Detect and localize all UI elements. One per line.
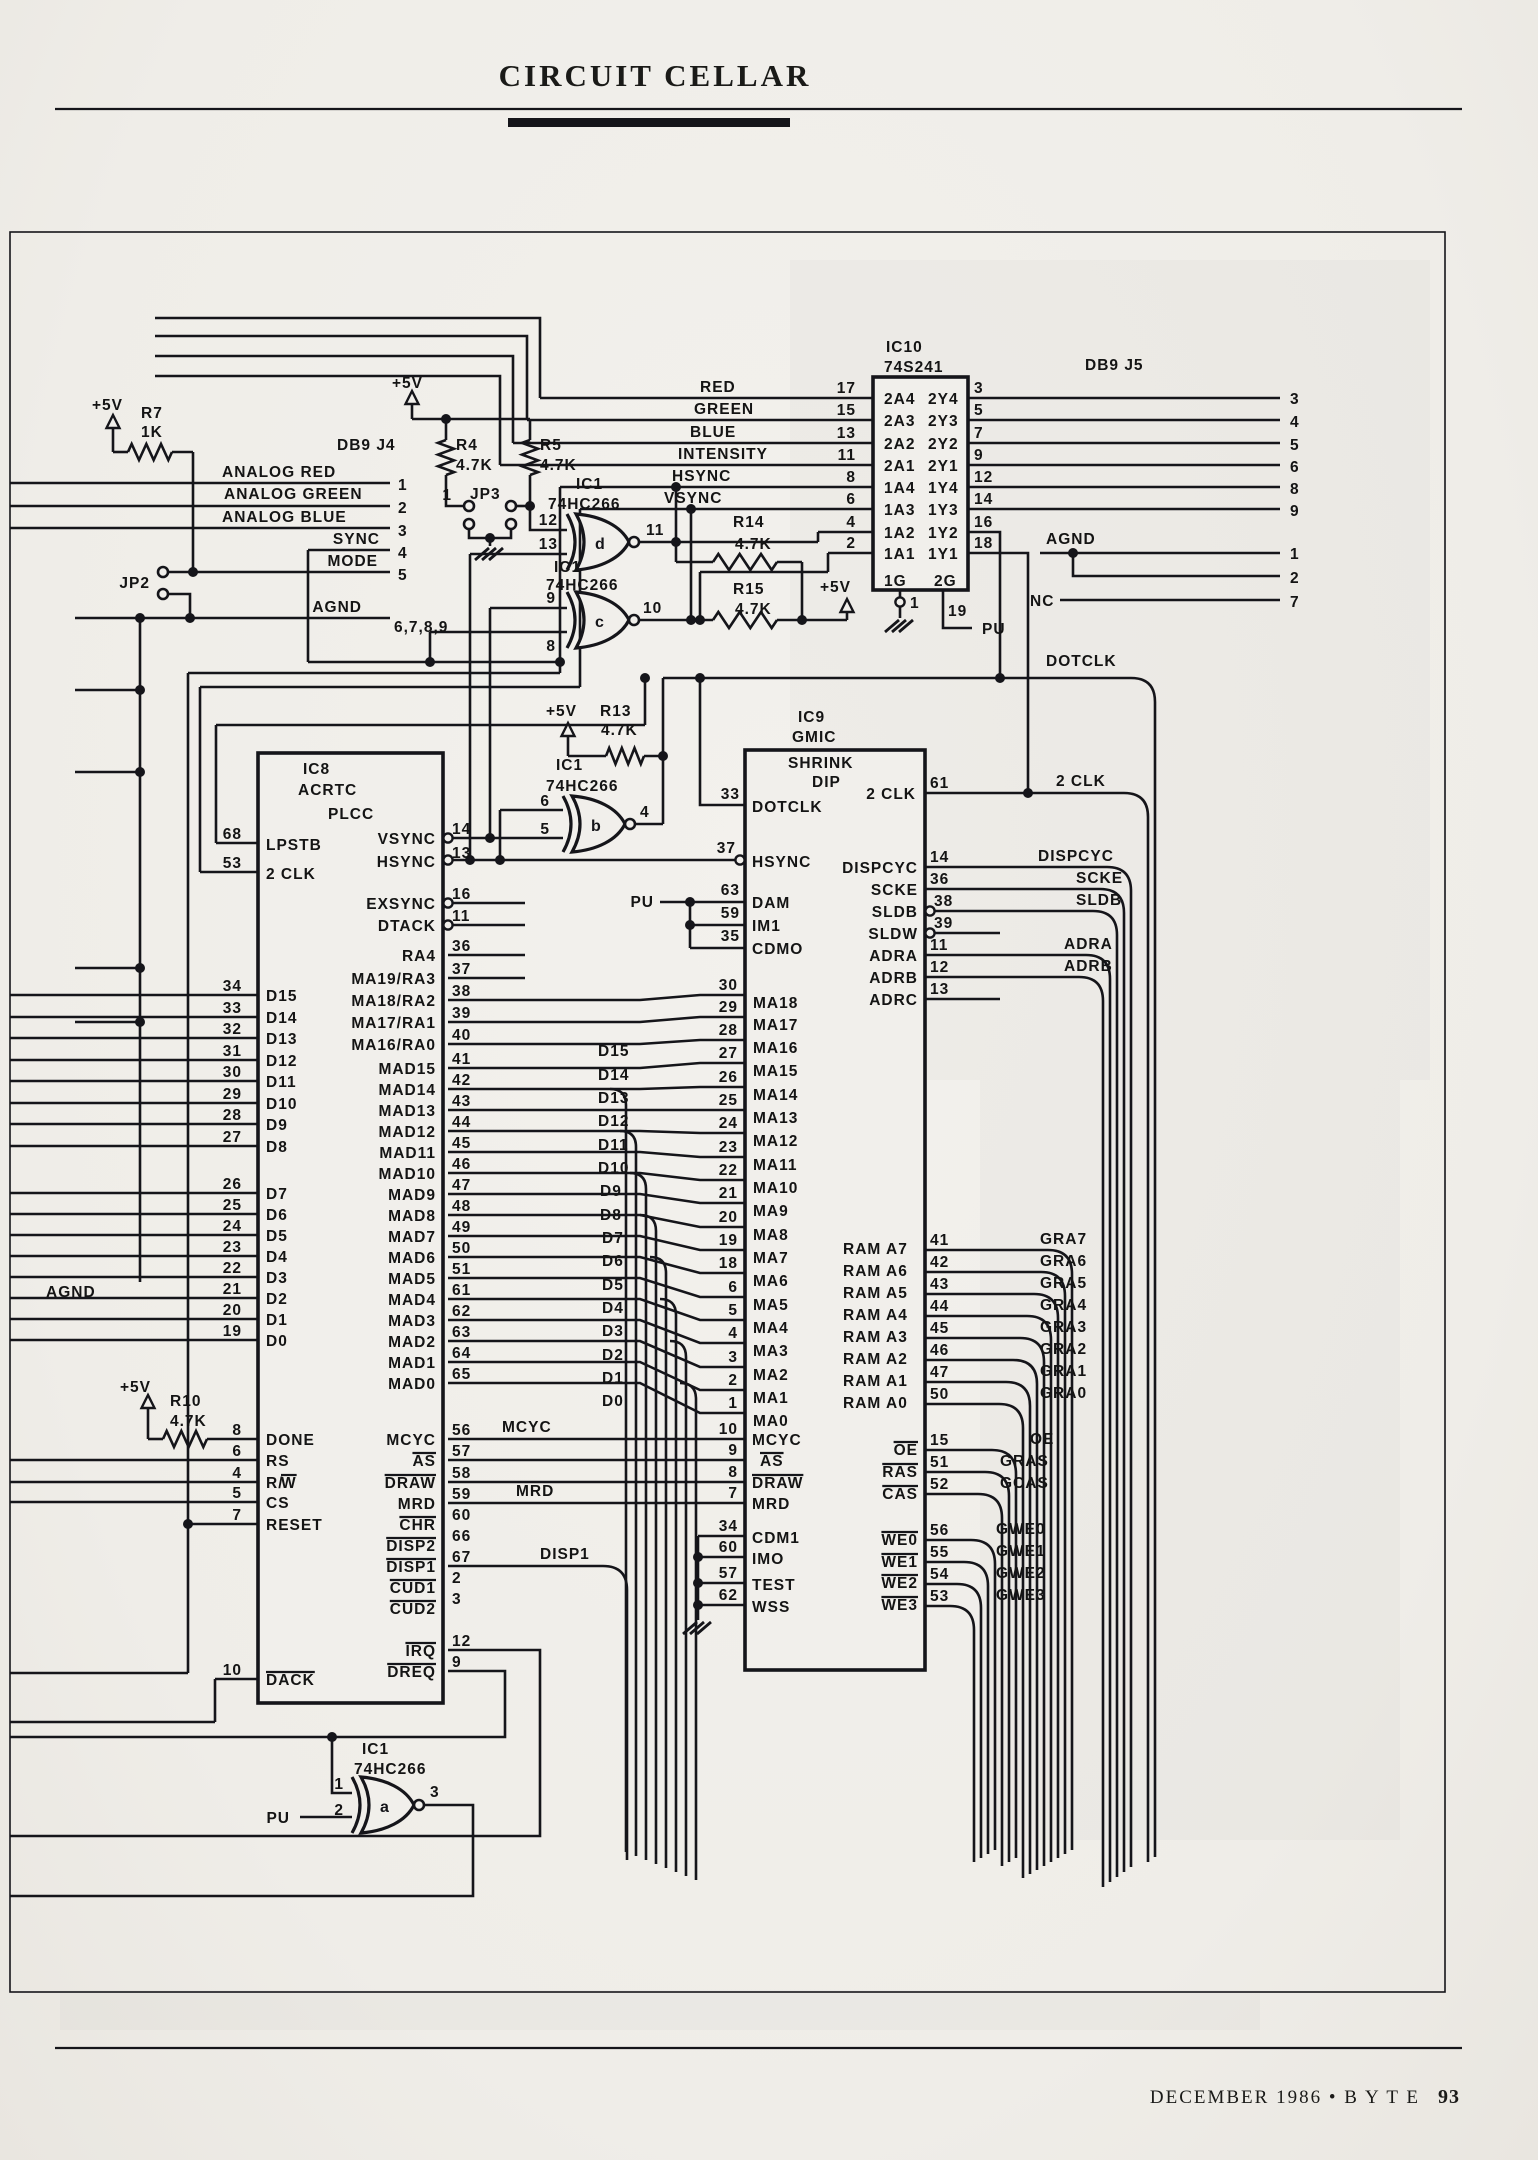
schematic-label: CHR [399,1517,436,1534]
schematic-label: 46 [452,1156,471,1173]
schematic-label: D11 [598,1137,629,1154]
wire [448,1131,745,1133]
schematic-label: 18 [974,535,993,552]
schematic-label: VSYNC [664,490,722,507]
schematic-label: DRAW [752,1475,803,1492]
junction-dot [525,501,535,511]
xnor-gate-letter: a [380,1799,389,1816]
schematic-label: 8 [546,638,556,655]
schematic-label: 74HC266 [354,1761,427,1778]
schematic-label: 18 [719,1255,738,1272]
schematic-label: WE3 [881,1597,918,1614]
junction-dot [693,1600,703,1610]
schematic-label: MA16/RA0 [351,1037,436,1054]
schematic-label: MA15 [753,1063,798,1080]
schematic-label: MA11 [753,1157,798,1174]
schematic-label: MA19/RA3 [351,971,436,988]
schematic-label: RAM A0 [843,1395,908,1412]
schematic-label: AS [412,1453,436,1470]
schematic-label: RAM A2 [843,1351,908,1368]
schematic-label: 34 [719,1518,738,1535]
junction-dot [686,615,696,625]
schematic-label: 59 [452,1486,471,1503]
schematic-label: 22 [223,1260,242,1277]
schematic-label: 11 [838,447,856,464]
schematic-label: 1 [1290,546,1300,563]
junction-dot [640,673,650,683]
schematic-label: 6 [1290,459,1300,476]
wire [448,1194,745,1203]
schematic-label: JP2 [119,575,150,592]
schematic-label: 24 [719,1115,738,1132]
wire [448,995,745,1000]
schematic-label: ADRB [1064,958,1113,975]
schematic-label: 13 [539,536,558,553]
schematic-label: 7 [728,1485,738,1502]
schematic-label: D2 [602,1347,624,1364]
jumper-pad [506,519,516,529]
schematic-label: IC10 [886,339,923,356]
schematic-label: MAD0 [388,1376,436,1393]
junction-dot [185,613,195,623]
schematic-label: CUD2 [390,1601,436,1618]
xnor-gate-bubble [629,615,639,625]
schematic-label: D10 [266,1096,297,1113]
schematic-label: GRA6 [1040,1253,1087,1270]
schematic-label: 2 CLK [866,786,916,803]
schematic-label: D1 [266,1312,288,1329]
schematic-label: 27 [223,1129,242,1146]
schematic-label: 1Y3 [928,502,959,519]
schematic-label: 37 [452,961,471,978]
schematic-label: +5V [546,703,577,720]
schematic-label: 45 [452,1135,471,1152]
schematic-label: D9 [266,1117,288,1134]
schematic-label: RAM A7 [843,1241,908,1258]
schematic-label: D4 [266,1249,288,1266]
schematic-label: 37 [717,840,736,857]
schematic-label: 3 [452,1591,462,1608]
schematic-label: R5 [540,437,562,454]
resistor [606,748,644,764]
schematic-label: 1 [910,595,920,612]
schematic-label: BLUE [690,424,736,441]
schematic-label: MA18/RA2 [351,993,436,1010]
schematic-label: 4 [640,804,650,821]
schematic-label: SYNC [333,531,380,548]
schematic-label: DB9 J4 [337,437,396,454]
schematic-label: GREEN [694,401,754,418]
schematic-label: 61 [930,775,949,792]
junction-dot [485,833,495,843]
junction-dot [135,963,145,973]
schematic-label: 38 [452,983,471,1000]
schematic-label: 67 [452,1549,471,1566]
schematic-label: 55 [930,1544,949,1561]
schematic-label: 3 [1290,391,1300,408]
schematic-label: MRD [398,1496,436,1513]
schematic-label: D3 [602,1323,624,1340]
schematic-label: 9 [546,590,556,607]
title-bar [508,118,790,127]
schematic-label: MAD15 [378,1061,436,1078]
schematic-label: 65 [452,1366,471,1383]
resistor [128,444,172,460]
schematic-label: 20 [719,1209,738,1226]
schematic-label: MAD1 [388,1355,436,1372]
schematic-label: D0 [266,1333,288,1350]
schematic-label: D8 [266,1139,288,1156]
junction-dot [135,1017,145,1027]
wire [448,1383,745,1413]
schematic-label: NC [1030,593,1054,610]
schematic-label: PU [266,1810,290,1827]
schematic-label: 1 [398,477,408,494]
junction-dot [327,1732,337,1742]
schematic-label: MAD7 [388,1229,436,1246]
schematic-label: 1 [442,487,452,504]
schematic-label: 1A1 [884,546,915,563]
schematic-label: 2A2 [884,436,915,453]
schematic-label: 74HC266 [546,577,619,594]
schematic-label: MA3 [753,1343,789,1360]
resistor [438,440,454,475]
schematic-label: 2 [846,535,856,552]
schematic-label: AGND [1046,531,1096,548]
schematic-label: 3 [728,1349,738,1366]
magazine-page: CIRCUIT CELLAR dcbaIC1074S2412A42Y42A32Y… [0,0,1538,2160]
schematic-label: 50 [452,1240,471,1257]
schematic-label: ADRA [1064,936,1113,953]
schematic-label: DIP [812,774,841,791]
schematic-label: 36 [930,871,949,888]
schematic-label: MA17 [753,1017,798,1034]
junction-dot [685,897,695,907]
schematic-label: D7 [266,1186,288,1203]
schematic-label: 2A1 [884,458,915,475]
schematic-label: 5 [232,1485,242,1502]
wire-curve [925,1606,974,1862]
schematic-label: 58 [452,1465,471,1482]
schematic-label: EXSYNC [366,896,436,913]
junction-dot [425,657,435,667]
schematic-label: 6 [232,1443,242,1460]
wire-curve [448,1566,627,1860]
xnor-gate-input-arc [352,1777,360,1833]
schematic-label: MAD3 [388,1313,436,1330]
schematic-label: IRQ [405,1643,436,1660]
schematic-label: 7 [1290,594,1300,611]
schematic-label: MODE [328,553,379,570]
schematic-label: 2Y1 [928,458,959,475]
schematic-label: CDM1 [752,1530,800,1547]
paper-bleed [60,1990,1260,2030]
wire [155,318,540,398]
schematic-label: ADRA [869,948,918,965]
schematic-label: 2Y3 [928,413,959,430]
schematic-label: 1 [728,1395,738,1412]
schematic-label: HSYNC [377,854,436,871]
schematic-label: DTACK [378,918,436,935]
schematic-label: MA0 [753,1413,789,1430]
jumper-pad [158,589,168,599]
jumper-pad [464,519,474,529]
schematic-label: JP3 [470,486,501,503]
schematic-label: DISP2 [386,1538,436,1555]
schematic-label: 63 [721,882,740,899]
wire-curve [640,1215,656,1864]
schematic-label: 39 [452,1005,471,1022]
schematic-label: RAM A4 [843,1307,908,1324]
schematic-label: AS [760,1453,784,1470]
schematic-label: 48 [452,1198,471,1215]
schematic-label: OE [1030,1431,1054,1448]
xnor-gate-letter: d [595,536,605,553]
schematic-label: 1Y2 [928,525,959,542]
schematic-label: RAM A6 [843,1263,908,1280]
schematic-label: 42 [930,1254,949,1271]
schematic-label: 41 [930,1232,949,1249]
wire [448,1278,745,1297]
schematic-label: 12 [452,1633,471,1650]
wire [448,1257,745,1273]
xnor-gate-bubble [414,1800,424,1810]
schematic-label: 4.7K [735,536,772,553]
schematic-label: MCYC [502,1419,552,1436]
schematic-label: 21 [719,1185,738,1202]
schematic-label: MA2 [753,1367,789,1384]
schematic-label: OE [894,1442,918,1459]
schematic-label: D8 [600,1207,622,1224]
wire [448,1152,745,1157]
schematic-label: 14 [930,849,949,866]
wire-curve [670,1341,686,1876]
schematic-label: 4 [398,545,408,562]
schematic-label: 15 [930,1432,949,1449]
schematic-label: 34 [223,978,242,995]
schematic-label: DOTCLK [1046,653,1117,670]
schematic-label: RA4 [402,948,436,965]
schematic-label: GRAS [1000,1453,1049,1470]
schematic-label: 66 [452,1528,471,1545]
schematic-label: 31 [223,1043,242,1060]
schematic-label: 38 [934,893,953,910]
schematic-label: DISPCYC [1038,848,1114,865]
schematic-label: GCAS [1000,1475,1049,1492]
schematic-label: MA5 [753,1297,789,1314]
schematic-label: PU [982,621,1006,638]
schematic-label: SLDB [1076,892,1122,909]
schematic-label: IC1 [554,559,581,576]
schematic-label: D6 [602,1253,624,1270]
junction-dot [1023,788,1033,798]
schematic-label: MAD12 [378,1124,436,1141]
schematic-label: 23 [223,1239,242,1256]
junction-dot [183,1519,193,1529]
schematic-label: MA9 [753,1203,789,1220]
junction-dot [693,1578,703,1588]
schematic-label: 1Y4 [928,480,959,497]
schematic-label: 10 [719,1421,738,1438]
schematic-label: RESET [266,1517,323,1534]
schematic-label: DACK [266,1672,315,1689]
schematic-label: 4 [232,1465,242,1482]
schematic-label: 7 [232,1507,242,1524]
schematic-label: D7 [602,1230,624,1247]
schematic-label: MAD5 [388,1271,436,1288]
schematic-label: SHRINK [788,755,853,772]
schematic-label: 62 [719,1587,738,1604]
schematic-label: 50 [930,1386,949,1403]
schematic-label: 2 [728,1372,738,1389]
schematic-label: MCYC [386,1432,436,1449]
schematic-label: 19 [719,1232,738,1249]
schematic-label: MA17/RA1 [351,1015,436,1032]
schematic-label: WE1 [881,1554,918,1571]
schematic-label: MCYC [752,1432,802,1449]
schematic-label: CAS [882,1486,918,1503]
schematic-label: MA10 [753,1180,798,1197]
schematic-label: 5 [974,402,984,419]
schematic-label: 2A3 [884,413,915,430]
schematic-label: 23 [719,1139,738,1156]
junction-dot [695,615,705,625]
schematic-label: D5 [602,1277,624,1294]
schematic-label: VSYNC [378,831,436,848]
schematic-label: 46 [930,1342,949,1359]
schematic-label: 42 [452,1072,471,1089]
schematic-label: 8 [1290,481,1300,498]
schematic-label: DISP1 [386,1559,436,1576]
vcc-arrow-icon [142,1395,155,1408]
schematic-label: 44 [452,1114,471,1131]
schematic-label: GWE1 [996,1543,1046,1560]
schematic-label: 1K [141,424,163,441]
schematic-label: MAD2 [388,1334,436,1351]
wire [155,356,513,443]
schematic-label: 6 [540,793,550,810]
schematic-label: 4 [846,514,856,531]
wire [448,1087,745,1089]
schematic-label: 20 [223,1302,242,1319]
schematic-label: TEST [752,1577,796,1594]
junction-dot [135,767,145,777]
schematic-label: MA4 [753,1320,789,1337]
schematic-label: D15 [266,988,297,1005]
schematic-label: 29 [719,999,738,1016]
schematic-label: MAD11 [379,1145,436,1162]
xnor-gate-bubble [629,537,639,547]
footer-page-number: 93 [1438,2086,1460,2108]
schematic-label: 13 [930,981,949,998]
schematic-label: RED [700,379,736,396]
schematic-label: CDMO [752,941,803,958]
schematic-label: +5V [820,579,851,596]
schematic-label: 14 [974,491,993,508]
schematic-label: MAD6 [388,1250,436,1267]
schematic-label: MA12 [753,1133,798,1150]
schematic-label: D3 [266,1270,288,1287]
xnor-gate-input-arc [563,796,571,852]
schematic-label: 2 [452,1570,462,1587]
schematic-label: 16 [452,886,471,903]
schematic-label: 2 CLK [266,866,316,883]
xnor-gate-bubble [625,819,635,829]
schematic-label: 11 [930,937,948,954]
schematic-label: 4.7K [456,457,493,474]
schematic-label: 2G [934,573,957,590]
junction-dot [485,533,495,543]
wire [155,336,527,420]
schematic-label: RAM A3 [843,1329,908,1346]
schematic-label: 62 [452,1303,471,1320]
page-footer: DECEMBER 1986 • B Y T E93 [1150,2086,1460,2109]
jumper-pad [506,501,516,511]
schematic-label: MA6 [753,1273,789,1290]
schematic-label: 4.7K [735,601,772,618]
schematic-label: GRA2 [1040,1341,1087,1358]
schematic-label: GWE0 [996,1521,1046,1538]
resistor [163,1431,207,1447]
schematic-label: SCKE [1076,870,1123,887]
schematic-label: 4 [1290,414,1300,431]
schematic-label: DONE [266,1432,315,1449]
schematic-label: 1A2 [884,525,915,542]
schematic-label: MA8 [753,1227,789,1244]
schematic-label: 6 [728,1279,738,1296]
jumper-pad [158,567,168,577]
wire [448,1320,745,1343]
junction-dot [441,414,451,424]
schematic-label: IM1 [752,918,781,935]
schematic-label: IC8 [303,761,330,778]
schematic-label: 12 [974,469,993,486]
schematic-label: 61 [452,1282,471,1299]
schematic-label: 11 [646,522,664,539]
schematic-label: 21 [223,1281,242,1298]
schematic-label: D0 [602,1393,624,1410]
schematic-label: R14 [733,514,764,531]
schematic-label: ADRC [869,992,918,1009]
schematic-label: IC1 [576,476,603,493]
schematic-label: 2 [334,1802,344,1819]
xnor-gate-letter: b [591,818,601,835]
schematic-label: 25 [223,1197,242,1214]
schematic-label: MA13 [753,1110,798,1127]
xnor-gate-input-arc [567,592,575,648]
schematic-label: 6,7,8,9 [394,619,448,636]
junction-dot [135,613,145,623]
schematic-label: D13 [598,1090,629,1107]
schematic-label: 8 [846,469,856,486]
schematic-label: 36 [452,938,471,955]
resistor [713,554,777,570]
wire [448,1173,745,1180]
schematic-label: ADRB [869,970,918,987]
schematic-label: MA16 [753,1040,798,1057]
schematic-label: 5 [540,821,550,838]
schematic-label: MAD14 [378,1082,436,1099]
schematic-label: RAM A5 [843,1285,908,1302]
junction-dot [495,855,505,865]
schematic-label: 47 [452,1177,471,1194]
schematic-label: 17 [837,380,856,397]
schematic-label: 3 [430,1784,440,1801]
schematic-label: WE0 [881,1532,918,1549]
schematic-label: 44 [930,1298,949,1315]
schematic-label: 40 [452,1027,471,1044]
junction-dot [658,751,668,761]
